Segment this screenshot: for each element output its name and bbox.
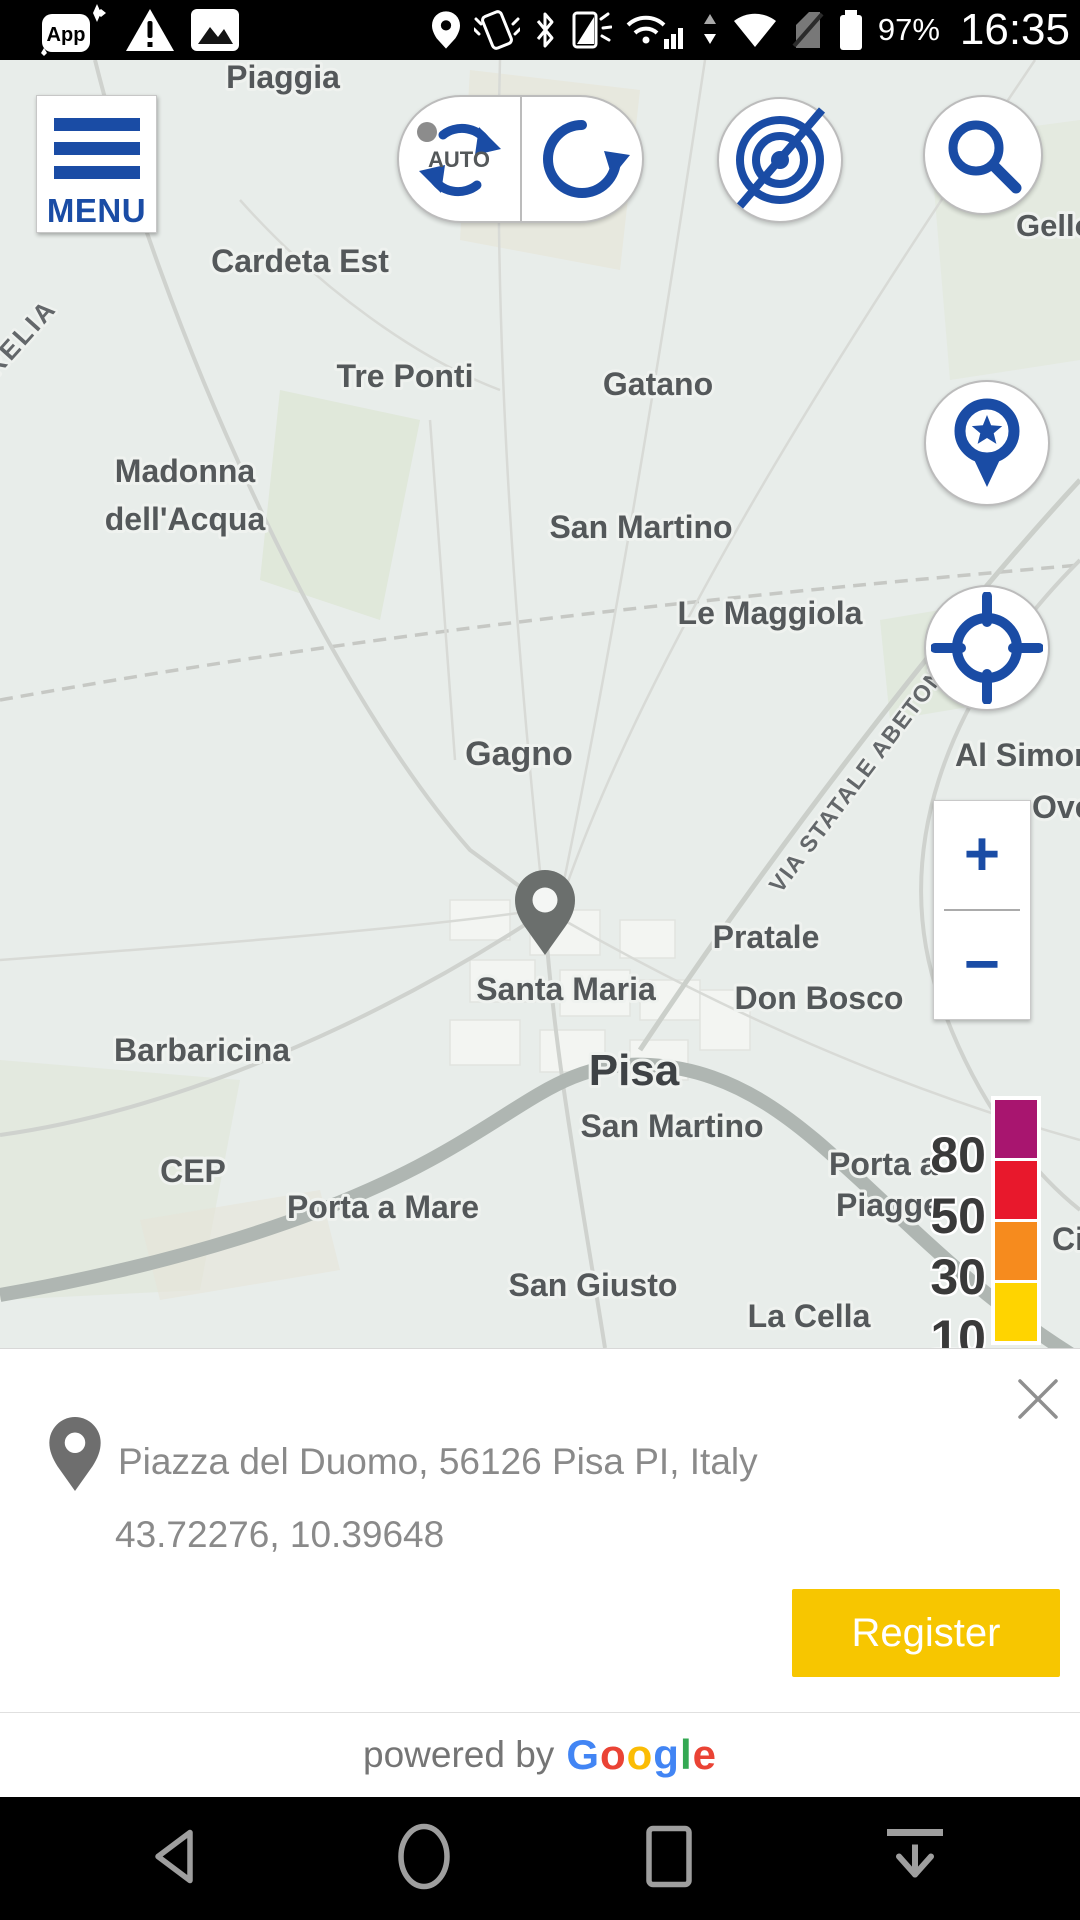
- map-label: RELIA: [0, 293, 63, 382]
- map-label: Le Maggiola: [678, 595, 863, 631]
- powered-by-text: powered by: [363, 1734, 554, 1776]
- refresh-pill: AUTO: [397, 95, 644, 223]
- search-icon: [936, 108, 1030, 202]
- map-label: San Martino: [549, 509, 732, 545]
- map-label: Pisa: [589, 1046, 680, 1095]
- recents-icon: [640, 1821, 698, 1891]
- svg-text:App: App: [47, 24, 86, 46]
- app-screen: App: [0, 0, 1080, 1920]
- google-logo: Google: [566, 1731, 717, 1779]
- map-label: Cardeta Est: [211, 243, 389, 279]
- refresh-button[interactable]: [522, 97, 643, 221]
- map-label: Ci: [1052, 1221, 1080, 1257]
- zoom-control: + −: [933, 800, 1031, 1020]
- close-icon: [1015, 1376, 1061, 1422]
- map-label: Madonna: [115, 453, 256, 489]
- map-label: Ovest: [1032, 789, 1080, 825]
- legend-value: 50: [840, 1187, 986, 1245]
- hamburger-icon: [54, 118, 140, 131]
- svg-text:AUTO: AUTO: [428, 147, 490, 172]
- legend-swatch: [995, 1100, 1037, 1158]
- map-canvas[interactable]: PiaggiaGelloCardeta EstRELIATre PontiGat…: [0, 60, 1080, 1348]
- zoom-in-button[interactable]: +: [934, 801, 1030, 909]
- clock: 16:35: [960, 5, 1070, 55]
- legend-value: 10: [840, 1309, 986, 1348]
- home-icon: [394, 1821, 454, 1891]
- back-icon: [146, 1824, 206, 1888]
- map-label: Gagno: [465, 735, 573, 773]
- close-button[interactable]: [1014, 1375, 1062, 1423]
- app-notification-icon: App: [40, 4, 110, 56]
- map-label: Piaggia: [226, 60, 340, 95]
- location-info-panel: Piazza del Duomo, 56126 Pisa PI, Italy 4…: [0, 1348, 1080, 1712]
- battery-percent: 97%: [878, 12, 940, 48]
- refresh-icon: [530, 107, 634, 211]
- nav-back-button[interactable]: [146, 1824, 206, 1893]
- map-label: Gello: [1016, 208, 1080, 243]
- wifi-signal-icon: [626, 9, 688, 51]
- bluetooth-icon: [534, 10, 556, 50]
- vibrate-icon: [474, 9, 520, 51]
- screenshot-image-icon: [190, 8, 240, 52]
- map-label: Barbaricina: [114, 1032, 290, 1068]
- legend-value: 80: [840, 1126, 986, 1184]
- warning-icon: [124, 7, 176, 53]
- location-icon: [432, 10, 460, 50]
- map-label: Al Simon: [955, 737, 1080, 773]
- menu-button[interactable]: MENU: [36, 95, 157, 233]
- battery-icon: [838, 10, 864, 50]
- data-arrows-icon: [702, 12, 718, 48]
- legend-value: 30: [840, 1248, 986, 1306]
- google-logo-letter: g: [653, 1731, 680, 1778]
- map-label: San Martino: [580, 1108, 763, 1144]
- zoom-out-button[interactable]: −: [934, 911, 1030, 1019]
- legend-swatch: [995, 1222, 1037, 1280]
- legend-swatch: [995, 1283, 1037, 1341]
- favorite-places-button[interactable]: [924, 380, 1050, 506]
- map-label: dell'Acqua: [105, 501, 266, 537]
- google-logo-letter: o: [600, 1731, 627, 1778]
- search-button[interactable]: [923, 95, 1043, 215]
- map-label: Tre Ponti: [337, 358, 474, 394]
- legend-swatch: [995, 1161, 1037, 1219]
- tracking-off-icon: [724, 104, 836, 216]
- attribution-bar: powered by Google: [0, 1712, 1080, 1797]
- tracking-off-button[interactable]: [717, 97, 843, 223]
- my-location-button[interactable]: [924, 585, 1050, 711]
- map-label: San Giusto: [509, 1267, 678, 1303]
- status-bar: App: [0, 0, 1080, 60]
- google-logo-letter: G: [566, 1731, 600, 1778]
- status-bar-left: App: [10, 4, 240, 56]
- hide-keyboard-icon: [873, 1824, 957, 1888]
- address-text: Piazza del Duomo, 56126 Pisa PI, Italy: [118, 1441, 758, 1483]
- density-legend: [991, 1096, 1041, 1345]
- map-label: Gatano: [603, 366, 713, 402]
- auto-refresh-button[interactable]: AUTO: [399, 97, 520, 221]
- nav-hide-keyboard-button[interactable]: [873, 1824, 957, 1893]
- register-button[interactable]: Register: [792, 1589, 1060, 1677]
- crosshair-icon: [931, 592, 1043, 704]
- map-label: Santa Maria: [476, 971, 656, 1007]
- address-pin-icon: [45, 1415, 105, 1498]
- wifi-full-icon: [732, 11, 778, 49]
- google-logo-letter: o: [627, 1731, 654, 1778]
- auto-refresh-icon: AUTO: [404, 104, 514, 214]
- menu-label: MENU: [47, 192, 146, 230]
- android-nav-bar: [0, 1797, 1080, 1920]
- map-label: Pratale: [713, 919, 820, 955]
- map-label: CEP: [160, 1153, 226, 1189]
- coordinates-text: 43.72276, 10.39648: [115, 1514, 444, 1556]
- no-sim-icon: [792, 10, 824, 50]
- map-label: Don Bosco: [735, 980, 904, 1016]
- star-pin-icon: [931, 387, 1043, 499]
- nav-home-button[interactable]: [394, 1821, 454, 1896]
- nav-recents-button[interactable]: [640, 1821, 698, 1896]
- map-label: Porta a Mare: [287, 1189, 479, 1225]
- google-logo-letter: l: [680, 1731, 693, 1778]
- status-bar-right: 97% 16:35: [432, 5, 1070, 55]
- google-logo-letter: e: [693, 1731, 717, 1778]
- device-alert-icon: [570, 9, 612, 51]
